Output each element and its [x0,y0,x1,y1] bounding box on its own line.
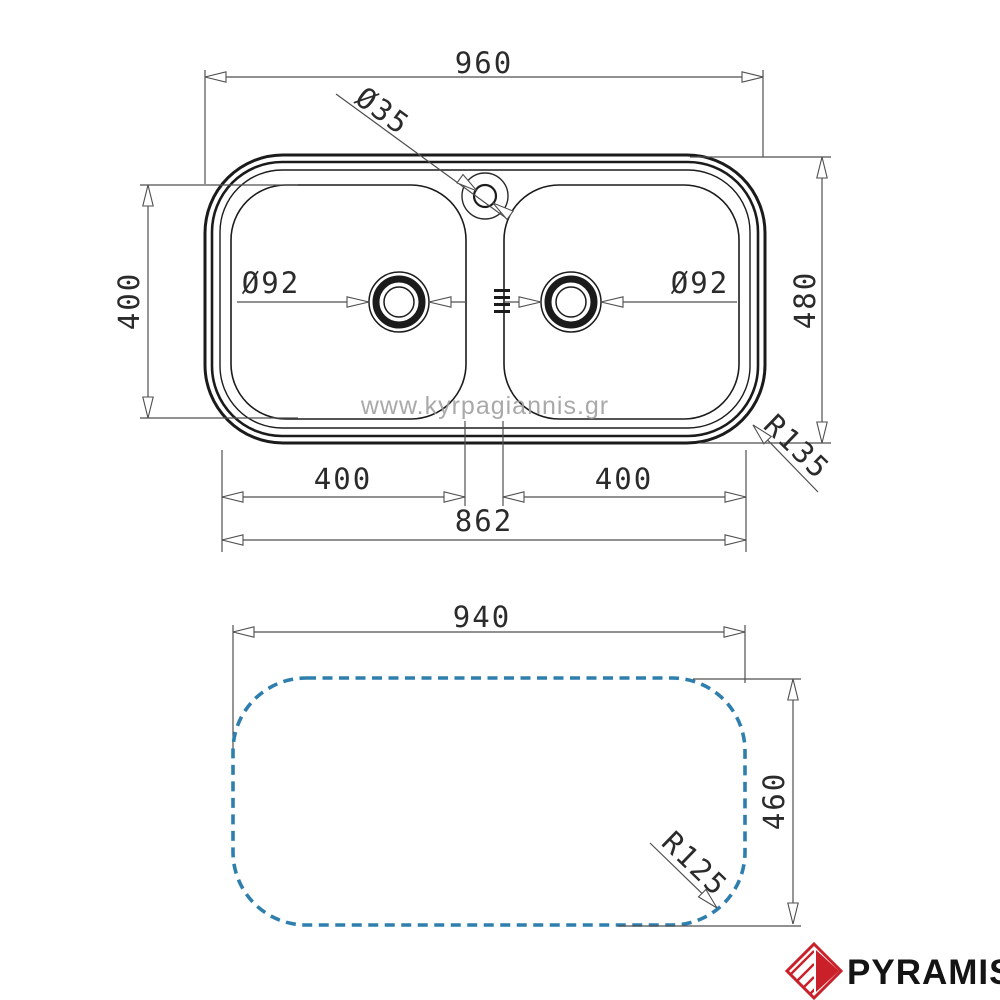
brand-logo: PYRAMIS [787,938,1000,1000]
faucet-hole [474,185,496,207]
cutout-view: 940 460 R125 [233,600,801,926]
dim-label-overall-depth: 480 [788,271,822,329]
arrow-right-b [725,492,746,502]
arrow-left [601,297,623,307]
arrow-up [817,157,827,178]
arrow-left [222,535,243,545]
pyramis-diamond-icon [787,938,841,1000]
arrow-right [347,297,369,307]
drain-right [541,272,601,332]
arrow-right [725,535,746,545]
dim-label-bowl-depth: 400 [112,272,146,330]
dim-label-overall-width: 960 [455,46,513,80]
arrow-down [788,903,798,924]
dim-label-drain-right: Ø92 [671,266,729,300]
arrow-down [143,397,153,418]
drain-left [369,272,429,332]
arrow-left [429,297,451,307]
dim-label-cutout-height: 460 [757,772,791,830]
drawing-svg: 960 Ø35 400 480 [0,0,1000,1000]
arrow-left [205,72,226,82]
arrow-right [724,627,745,637]
arrow-down [817,422,827,443]
dim-drain-right: Ø92 [504,266,737,307]
arrow-right [519,297,541,307]
arrow-up [143,185,153,206]
dim-overall-depth: 480 [690,157,831,443]
dim-cutout-corner-radius: R125 [650,825,735,908]
cutout-outline [233,678,745,925]
dim-label-inner-width: 862 [455,504,513,538]
arrow-right-a [444,492,465,502]
arrow-left-b [503,492,524,502]
dim-inner-width: 862 [222,504,746,545]
dim-drain-left: Ø92 [237,266,466,307]
sink-technical-drawing: 960 Ø35 400 480 [0,0,1000,1000]
arrow-left-a [222,492,243,502]
dim-corner-radius: R135 [753,408,837,492]
dim-label-faucet-hole: Ø35 [349,80,416,142]
dim-label-bowl-width-left: 400 [314,462,372,496]
arrow-right [742,72,763,82]
arrow-up [788,679,798,700]
arrow-left [233,627,254,637]
center-equal-marks [494,289,510,313]
dim-label-corner-radius: R135 [757,408,837,487]
dim-label-cutout-corner-radius: R125 [655,825,735,904]
dim-label-bowl-width-right: 400 [595,462,653,496]
dim-label-drain-left: Ø92 [242,266,300,300]
dim-label-cutout-width: 940 [453,600,511,634]
brand-name: PYRAMIS [847,953,1000,992]
top-view: 960 Ø35 400 480 [112,46,837,552]
watermark: www.kyrpagiannis.gr [360,392,609,420]
